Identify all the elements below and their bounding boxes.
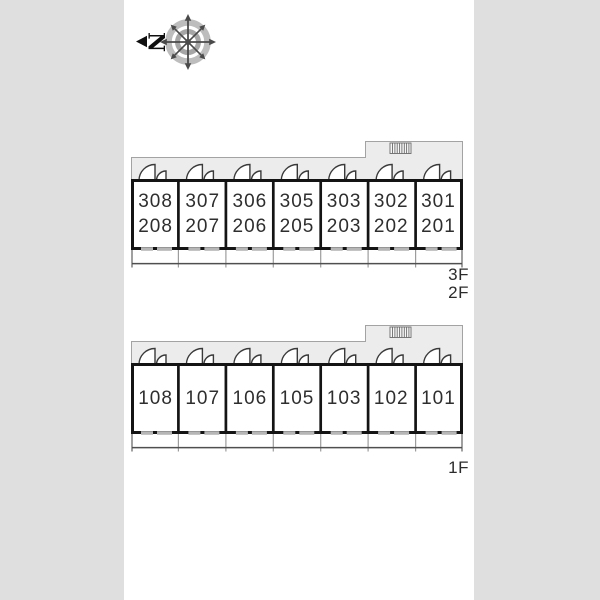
room-cell: 307 207 bbox=[179, 182, 226, 246]
room-number: 308 bbox=[138, 189, 173, 214]
floor-label: 3F bbox=[131, 266, 469, 284]
room-number: 207 bbox=[185, 214, 220, 239]
room-cell: 302 202 bbox=[368, 182, 415, 246]
room-cell: 102 bbox=[368, 366, 415, 430]
floor-label: 2F bbox=[131, 284, 469, 302]
room-row-upper: 308 208 307 207 306 206 305 205 303 203 … bbox=[132, 182, 462, 246]
room-number: 107 bbox=[185, 386, 220, 411]
room-number: 307 bbox=[185, 189, 220, 214]
room-number: 203 bbox=[327, 214, 362, 239]
room-cell: 108 bbox=[132, 366, 179, 430]
room-number: 201 bbox=[421, 214, 456, 239]
room-number: 301 bbox=[421, 189, 456, 214]
room-number: 306 bbox=[233, 189, 268, 214]
room-number: 305 bbox=[280, 189, 315, 214]
room-cell: 105 bbox=[273, 366, 320, 430]
floor-label-first: 1F bbox=[131, 459, 469, 477]
north-label: N bbox=[143, 32, 169, 52]
room-cell: 305 205 bbox=[273, 182, 320, 246]
room-cell: 306 206 bbox=[226, 182, 273, 246]
room-cell: 308 208 bbox=[132, 182, 179, 246]
compass-rose-icon: N bbox=[132, 13, 244, 73]
room-number: 105 bbox=[280, 386, 315, 411]
room-number: 106 bbox=[233, 386, 268, 411]
floorplan-page: N 308 208 307 207 306 206 305 205 303 20… bbox=[0, 0, 600, 600]
room-number: 202 bbox=[374, 214, 409, 239]
room-number: 103 bbox=[327, 386, 362, 411]
room-cell: 106 bbox=[226, 366, 273, 430]
room-number: 302 bbox=[374, 189, 409, 214]
room-number: 303 bbox=[327, 189, 362, 214]
floor-label-upper: 3F 2F bbox=[131, 266, 469, 301]
room-cell: 301 201 bbox=[415, 182, 462, 246]
room-number: 101 bbox=[421, 386, 456, 411]
room-cell: 103 bbox=[321, 366, 368, 430]
room-number: 205 bbox=[280, 214, 315, 239]
room-number: 208 bbox=[138, 214, 173, 239]
room-cell: 303 203 bbox=[321, 182, 368, 246]
north-arrow-icon: N bbox=[136, 32, 169, 52]
room-cell: 107 bbox=[179, 366, 226, 430]
room-row-first: 108 107 106 105 103 102 101 bbox=[132, 366, 462, 430]
room-number: 102 bbox=[374, 386, 409, 411]
room-cell: 101 bbox=[415, 366, 462, 430]
room-number: 108 bbox=[138, 386, 173, 411]
room-number: 206 bbox=[233, 214, 268, 239]
floor-label: 1F bbox=[131, 459, 469, 477]
